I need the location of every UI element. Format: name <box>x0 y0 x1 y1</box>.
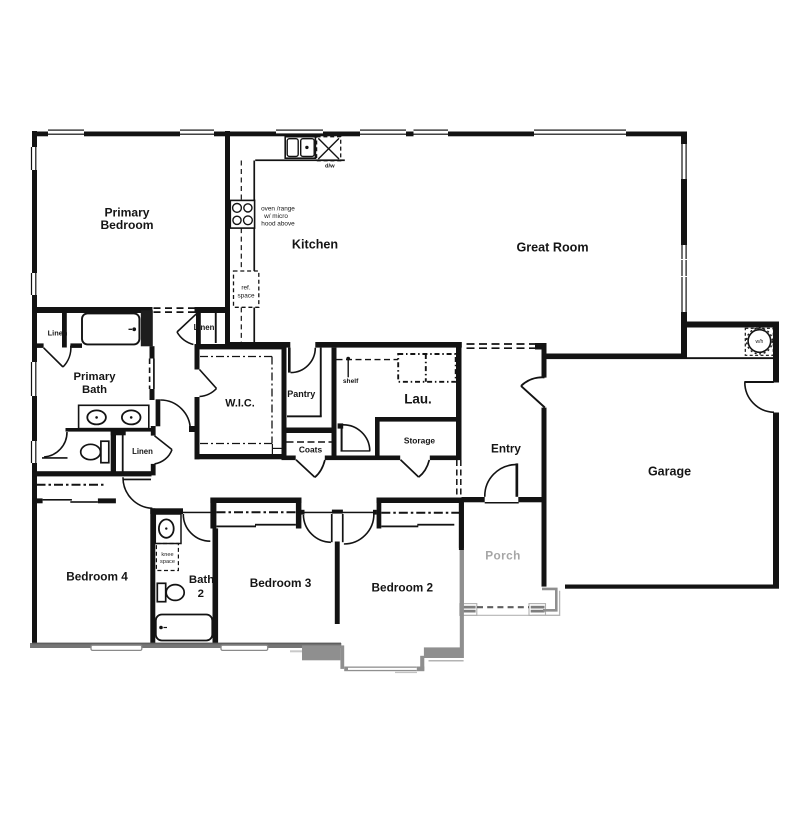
svg-text:space: space <box>237 293 254 300</box>
svg-text:W.I.C.: W.I.C. <box>225 397 254 409</box>
svg-text:Storage: Storage <box>404 435 436 445</box>
svg-text:Bath: Bath <box>189 574 214 586</box>
svg-text:Great Room: Great Room <box>516 241 588 255</box>
svg-text:Primary: Primary <box>73 371 116 383</box>
svg-text:knee: knee <box>161 552 173 558</box>
svg-text:Bath: Bath <box>82 384 107 396</box>
svg-text:Bedroom: Bedroom <box>100 218 153 232</box>
svg-text:space: space <box>160 559 175 565</box>
svg-text:Entry: Entry <box>491 443 521 456</box>
svg-text:Linen: Linen <box>132 447 153 456</box>
svg-text:Kitchen: Kitchen <box>292 238 338 252</box>
svg-text:Porch: Porch <box>485 548 520 562</box>
svg-text:Pantry: Pantry <box>287 389 315 399</box>
svg-text:d/w: d/w <box>325 163 335 169</box>
svg-text:2: 2 <box>198 588 204 600</box>
svg-text:Bedroom 3: Bedroom 3 <box>250 576 312 590</box>
svg-text:Bedroom 2: Bedroom 2 <box>371 580 433 594</box>
svg-text:hood above: hood above <box>261 220 295 227</box>
svg-text:Lau.: Lau. <box>404 391 432 406</box>
svg-text:Garage: Garage <box>648 464 691 478</box>
svg-text:w/h: w/h <box>756 339 764 345</box>
svg-text:ref.: ref. <box>241 285 250 292</box>
svg-text:oven /range: oven /range <box>261 206 295 213</box>
svg-text:shelf: shelf <box>343 378 359 385</box>
svg-text:w/ micro: w/ micro <box>263 213 288 220</box>
svg-text:Linen: Linen <box>194 323 215 332</box>
svg-text:Linen: Linen <box>48 328 68 337</box>
svg-text:Coats: Coats <box>299 445 323 455</box>
svg-text:Bedroom 4: Bedroom 4 <box>66 569 128 583</box>
